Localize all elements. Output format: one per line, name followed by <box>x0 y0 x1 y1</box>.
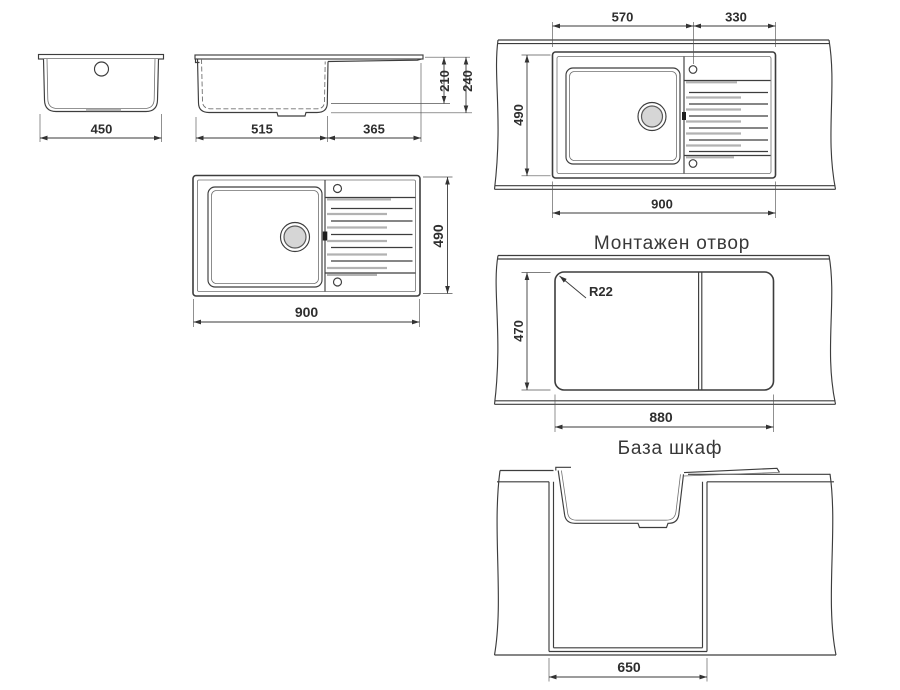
drain-hole-icon <box>284 226 306 248</box>
side-depth-dimensions: 210 240 <box>331 57 475 113</box>
cabinet-view-title: База шкаф <box>618 438 723 459</box>
cabinet-width-dimension: 650 <box>549 658 707 682</box>
ct-width-dimension: 490 <box>511 55 551 176</box>
ct-basin-span-label: 570 <box>612 10 634 25</box>
top-view: 900 490 <box>193 176 453 328</box>
ct-width-label: 490 <box>511 104 526 126</box>
front-width-label: 450 <box>91 122 113 137</box>
corner-radius-label: R22 <box>589 284 613 299</box>
front-width-dimension: 450 <box>40 114 162 142</box>
side-basin-depth-label: 210 <box>437 70 452 92</box>
ct-drainboard-span-label: 330 <box>725 10 747 25</box>
cutout-view: Монтажен отвор R22 470 880 <box>495 233 836 432</box>
side-view: 515 365 210 240 <box>195 55 475 142</box>
side-length-dimensions: 515 365 <box>196 63 421 142</box>
countertop-top-view: 570 330 490 900 <box>495 10 836 219</box>
drainboard-profile <box>684 468 780 472</box>
ct-divider-notch <box>682 112 686 120</box>
top-length-label: 900 <box>295 304 319 320</box>
break-line-right <box>829 256 836 405</box>
break-line-left <box>495 471 501 656</box>
break-line-right <box>830 474 836 655</box>
break-line-left <box>495 256 499 405</box>
spec-sheet: 450 515 365 210 240 <box>0 0 900 690</box>
cabinet-countertop <box>497 471 834 482</box>
cutout-length-dimension: 880 <box>555 395 774 433</box>
cabinet-width-label: 650 <box>617 659 641 675</box>
side-basin-inner-dashed <box>202 59 326 109</box>
ct-drainboard-ribs <box>684 66 771 168</box>
ct-sink-outer-rect <box>553 52 776 178</box>
break-line-right <box>829 40 836 189</box>
top-length-dimension: 900 <box>194 299 420 327</box>
side-overall-depth-label: 240 <box>460 70 475 92</box>
side-basin-profile <box>198 59 329 116</box>
front-rim <box>39 55 164 60</box>
front-view: 450 <box>39 55 164 143</box>
side-rim <box>195 55 423 59</box>
cutout-length-label: 880 <box>649 409 673 425</box>
cabinet-section-view: База шкаф 650 <box>495 438 837 682</box>
cutout-view-title: Монтажен отвор <box>594 233 750 254</box>
ct-drain-hole-icon <box>642 106 663 127</box>
top-divider-notch <box>323 232 328 241</box>
cutout-width-label: 470 <box>511 320 526 342</box>
side-basin-length-label: 515 <box>251 122 273 137</box>
side-drainboard-length-label: 365 <box>363 122 385 137</box>
top-width-label: 490 <box>430 224 446 248</box>
cabinet-sink-section <box>556 467 780 527</box>
ct-length-label: 900 <box>651 197 673 212</box>
cutout-width-dimension: 470 <box>511 273 551 391</box>
ct-length-dimension: 900 <box>553 182 776 219</box>
cabinet-carcass <box>495 471 837 656</box>
cutout-rect <box>555 272 774 390</box>
sink-technical-drawing: 450 515 365 210 240 <box>0 0 900 690</box>
break-line-left <box>495 40 499 189</box>
overflow-hole-icon <box>95 62 109 76</box>
top-width-dimension: 490 <box>423 177 453 294</box>
